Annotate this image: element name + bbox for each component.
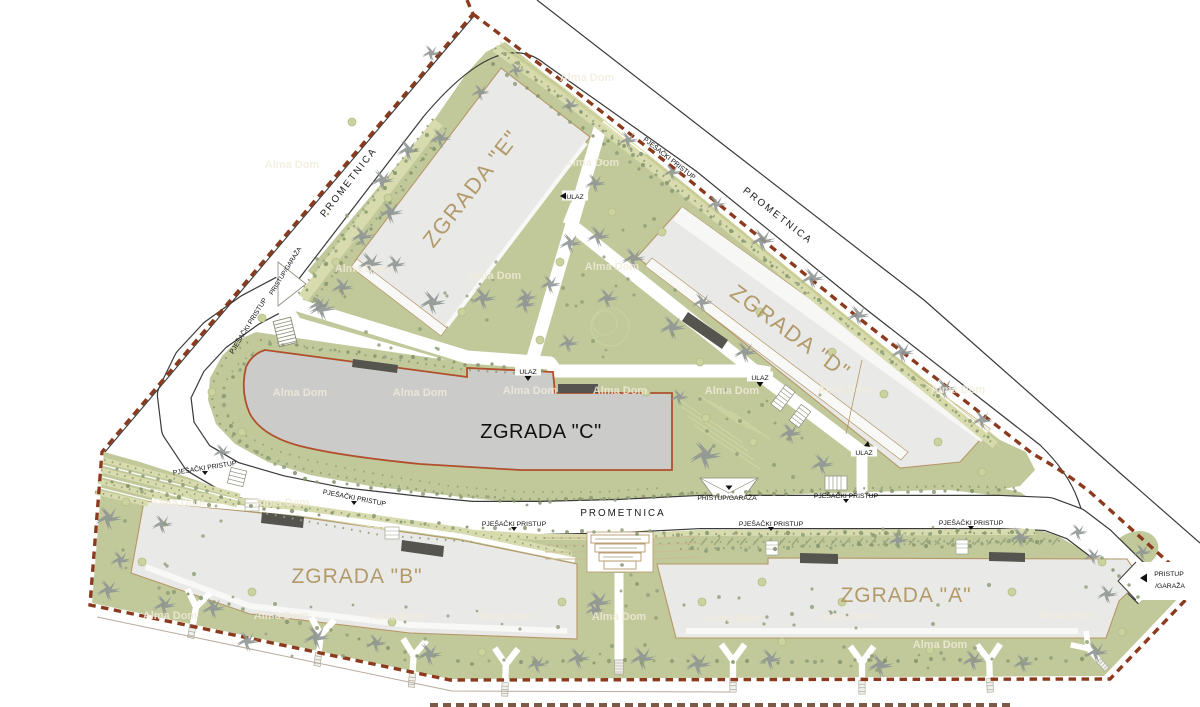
svg-text:PROMETNICA: PROMETNICA <box>580 508 665 519</box>
svg-text:Alma Dom: Alma Dom <box>592 611 647 623</box>
svg-text:Alma Dom: Alma Dom <box>820 611 875 623</box>
svg-text:Alma Dom: Alma Dom <box>503 385 558 397</box>
svg-text:Alma Dom: Alma Dom <box>255 497 310 509</box>
svg-text:Alma Dom: Alma Dom <box>565 157 620 169</box>
svg-text:ULAZ: ULAZ <box>855 450 872 457</box>
svg-text:Alma Dom: Alma Dom <box>818 384 873 396</box>
svg-text:Alma Dom: Alma Dom <box>593 385 648 397</box>
svg-text:ULAZ: ULAZ <box>566 194 583 201</box>
svg-text:Alma Dom: Alma Dom <box>393 387 448 399</box>
svg-text:Alma Dom: Alma Dom <box>370 611 425 623</box>
svg-text:Alma Dom: Alma Dom <box>335 263 390 275</box>
svg-text:Alma Dom: Alma Dom <box>467 270 522 282</box>
svg-text:ZGRADA "C": ZGRADA "C" <box>480 421 601 443</box>
svg-text:Alma Dom: Alma Dom <box>931 384 986 396</box>
svg-text:Alma Dom: Alma Dom <box>254 610 309 622</box>
svg-text:Alma Dom: Alma Dom <box>478 611 533 623</box>
svg-text:PJEŠAČKI PRISTUP: PJEŠAČKI PRISTUP <box>814 491 879 500</box>
svg-text:ZGRADA "A": ZGRADA "A" <box>840 584 971 607</box>
svg-text:ULAZ: ULAZ <box>751 375 768 382</box>
svg-text:Alma Dom: Alma Dom <box>560 72 615 84</box>
svg-text:Alma Dom: Alma Dom <box>1038 610 1093 622</box>
svg-text:PJEŠAČKI PRISTUP: PJEŠAČKI PRISTUP <box>939 518 1004 527</box>
svg-text:ULAZ: ULAZ <box>519 369 536 376</box>
svg-text:Alma Dom: Alma Dom <box>265 159 320 171</box>
svg-text:PJEŠAČKI PRISTUP: PJEŠAČKI PRISTUP <box>739 519 804 528</box>
svg-text:Alma Dom: Alma Dom <box>705 385 760 397</box>
svg-text:/GARAŽA: /GARAŽA <box>1155 581 1185 590</box>
svg-text:PJEŠAČKI PRISTUP: PJEŠAČKI PRISTUP <box>482 519 547 528</box>
svg-text:Alma Dom: Alma Dom <box>913 639 968 651</box>
svg-text:Alma Dom: Alma Dom <box>706 613 761 625</box>
svg-text:PRISTUP: PRISTUP <box>1154 571 1184 578</box>
svg-text:ZGRADA "B": ZGRADA "B" <box>291 565 422 588</box>
svg-text:Alma Dom: Alma Dom <box>151 497 206 509</box>
svg-text:Alma Dom: Alma Dom <box>585 261 640 273</box>
svg-text:Alma Dom: Alma Dom <box>143 610 198 622</box>
svg-text:Alma Dom: Alma Dom <box>273 387 328 399</box>
svg-text:PRISTUP/GARAŽA: PRISTUP/GARAŽA <box>697 493 757 502</box>
